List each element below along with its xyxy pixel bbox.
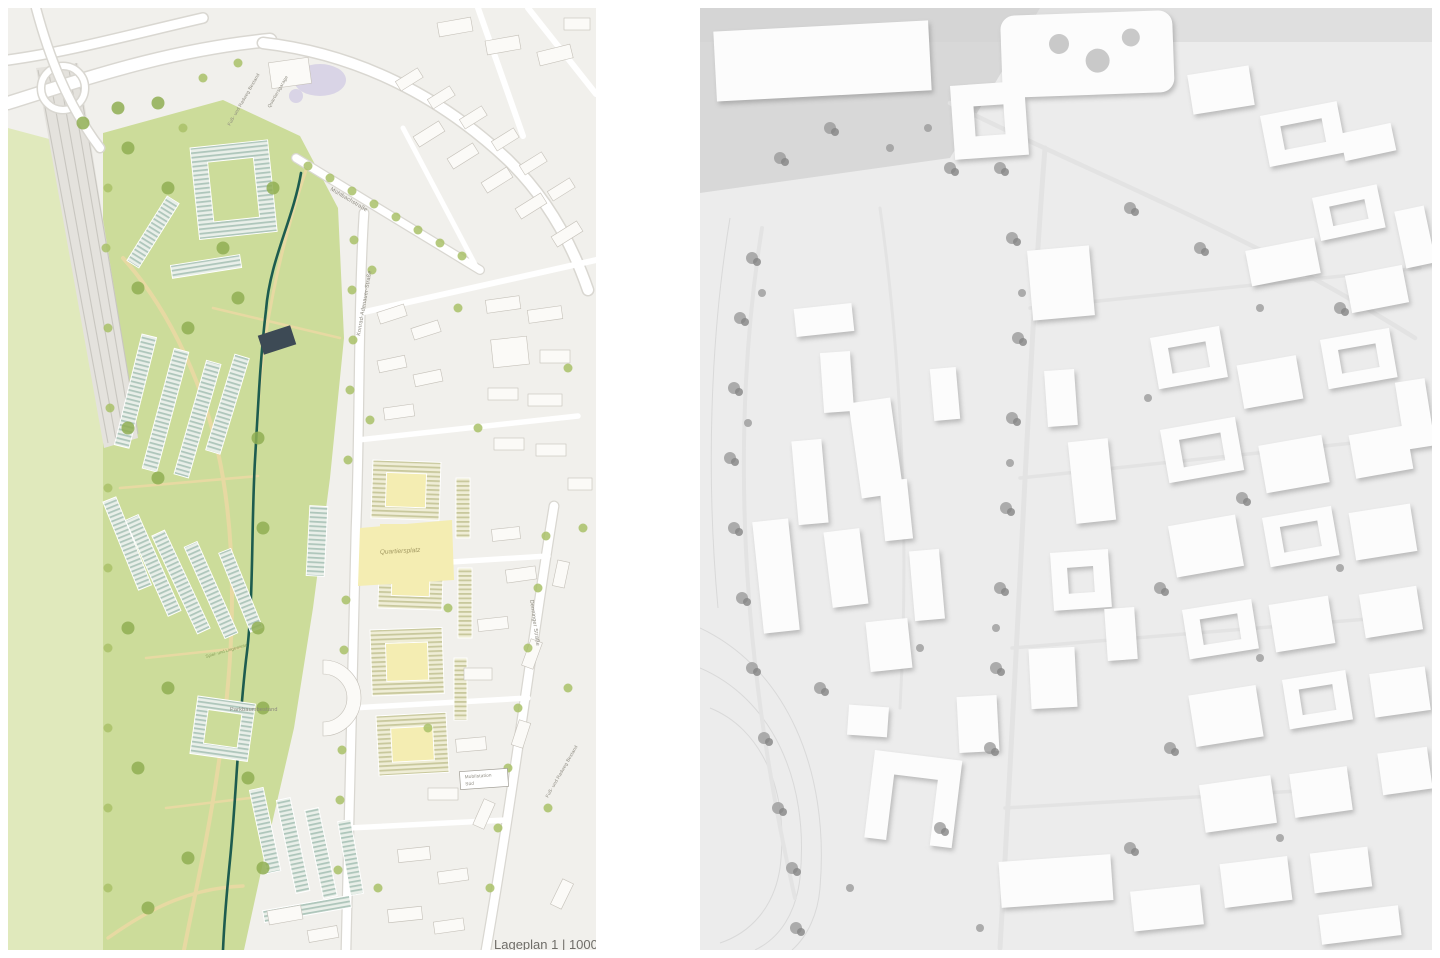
plan-caption: Lageplan 1 | 1000 <box>494 937 596 950</box>
model-photo-panel <box>700 8 1432 950</box>
blob-roof-building <box>1000 10 1175 98</box>
mobility-label-2: Süd <box>465 781 474 787</box>
site-plan-drawing: Fuß- und Radweg Bestand Quartiersgarage … <box>8 8 596 950</box>
park-trees-label: Parkbaumbestand <box>230 707 278 713</box>
model-photo <box>700 8 1432 950</box>
mobility-station-box: Mobilstation Süd <box>459 768 508 789</box>
presentation-board: Fuß- und Radweg Bestand Quartiersgarage … <box>0 0 1440 958</box>
site-plan-panel: Fuß- und Radweg Bestand Quartiersgarage … <box>8 8 596 950</box>
